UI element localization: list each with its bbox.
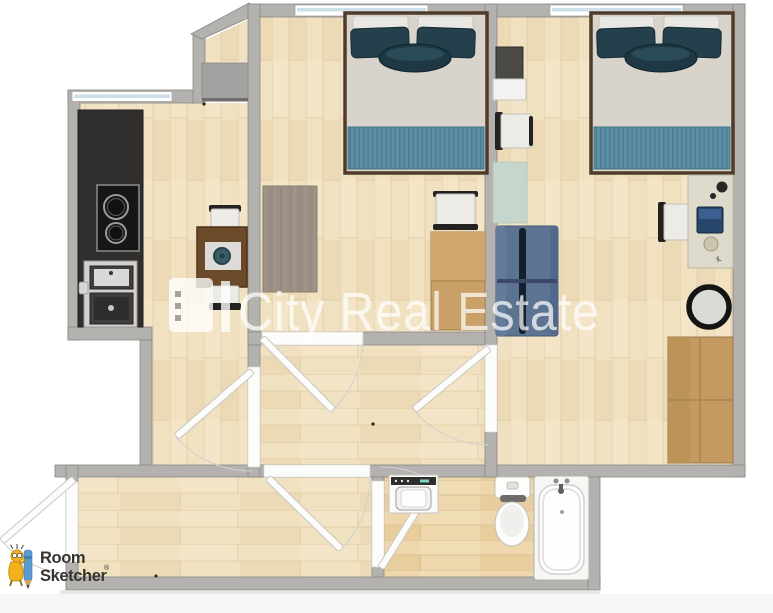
bathroom-door-opening — [372, 481, 384, 567]
bath-right-wall — [588, 477, 600, 590]
bedroom2-door-opening — [485, 345, 497, 432]
pencil-icon — [24, 550, 32, 581]
cooktop — [97, 185, 139, 251]
bottom-strip — [0, 594, 773, 613]
hall-entrance-opening — [264, 465, 370, 477]
roomsketcher-text-line1: Room — [40, 549, 85, 567]
bottom-wall — [66, 577, 600, 590]
faucet — [79, 282, 88, 294]
double-bed-2 — [591, 13, 733, 173]
double-bed-1 — [345, 13, 487, 173]
mint-mat — [493, 162, 527, 223]
dining-chair-north — [209, 205, 241, 228]
entrance-hall-floor — [78, 477, 372, 577]
toilet — [495, 477, 530, 546]
tub-drain — [560, 510, 564, 514]
front-door-leaf — [0, 476, 76, 543]
living-door-opening — [248, 367, 260, 467]
bottom-wall-shadow — [60, 590, 600, 594]
tub-faucet-handle — [554, 479, 559, 484]
roomsketcher-text-line2: Sketcher — [40, 567, 107, 585]
desk-chair-1 — [433, 191, 478, 230]
right-wall — [733, 4, 745, 477]
bathtub — [534, 476, 589, 580]
round-mirror-chair — [689, 287, 729, 327]
mouse — [704, 237, 718, 251]
laptop-desk — [688, 175, 733, 268]
washing-machine — [389, 475, 438, 513]
kitchen-sink-unit — [79, 261, 137, 327]
wall-chair — [495, 112, 533, 150]
kitchen-window — [72, 92, 172, 102]
registered-mark: ® — [104, 564, 110, 572]
rug — [263, 186, 317, 292]
utility-shaft — [202, 63, 248, 101]
tv-cabinet — [493, 47, 526, 100]
below-kitchen-wall — [68, 327, 152, 340]
wardrobe — [668, 337, 733, 463]
hallway-floor — [260, 345, 485, 465]
desk-plant — [717, 182, 728, 193]
desk-chair-2 — [658, 202, 690, 242]
watermark-logo-bar — [221, 281, 230, 332]
floorplan-screenshot: City Real Estate Room Sketcher ® — [0, 0, 773, 613]
tub-spout — [558, 488, 564, 494]
floorplan-svg: City Real Estate Room Sketcher ® — [0, 0, 773, 613]
shaft-bottom-edge — [202, 98, 248, 102]
watermark-text: City Real Estate — [238, 282, 600, 342]
mid-left-wall — [140, 340, 152, 465]
